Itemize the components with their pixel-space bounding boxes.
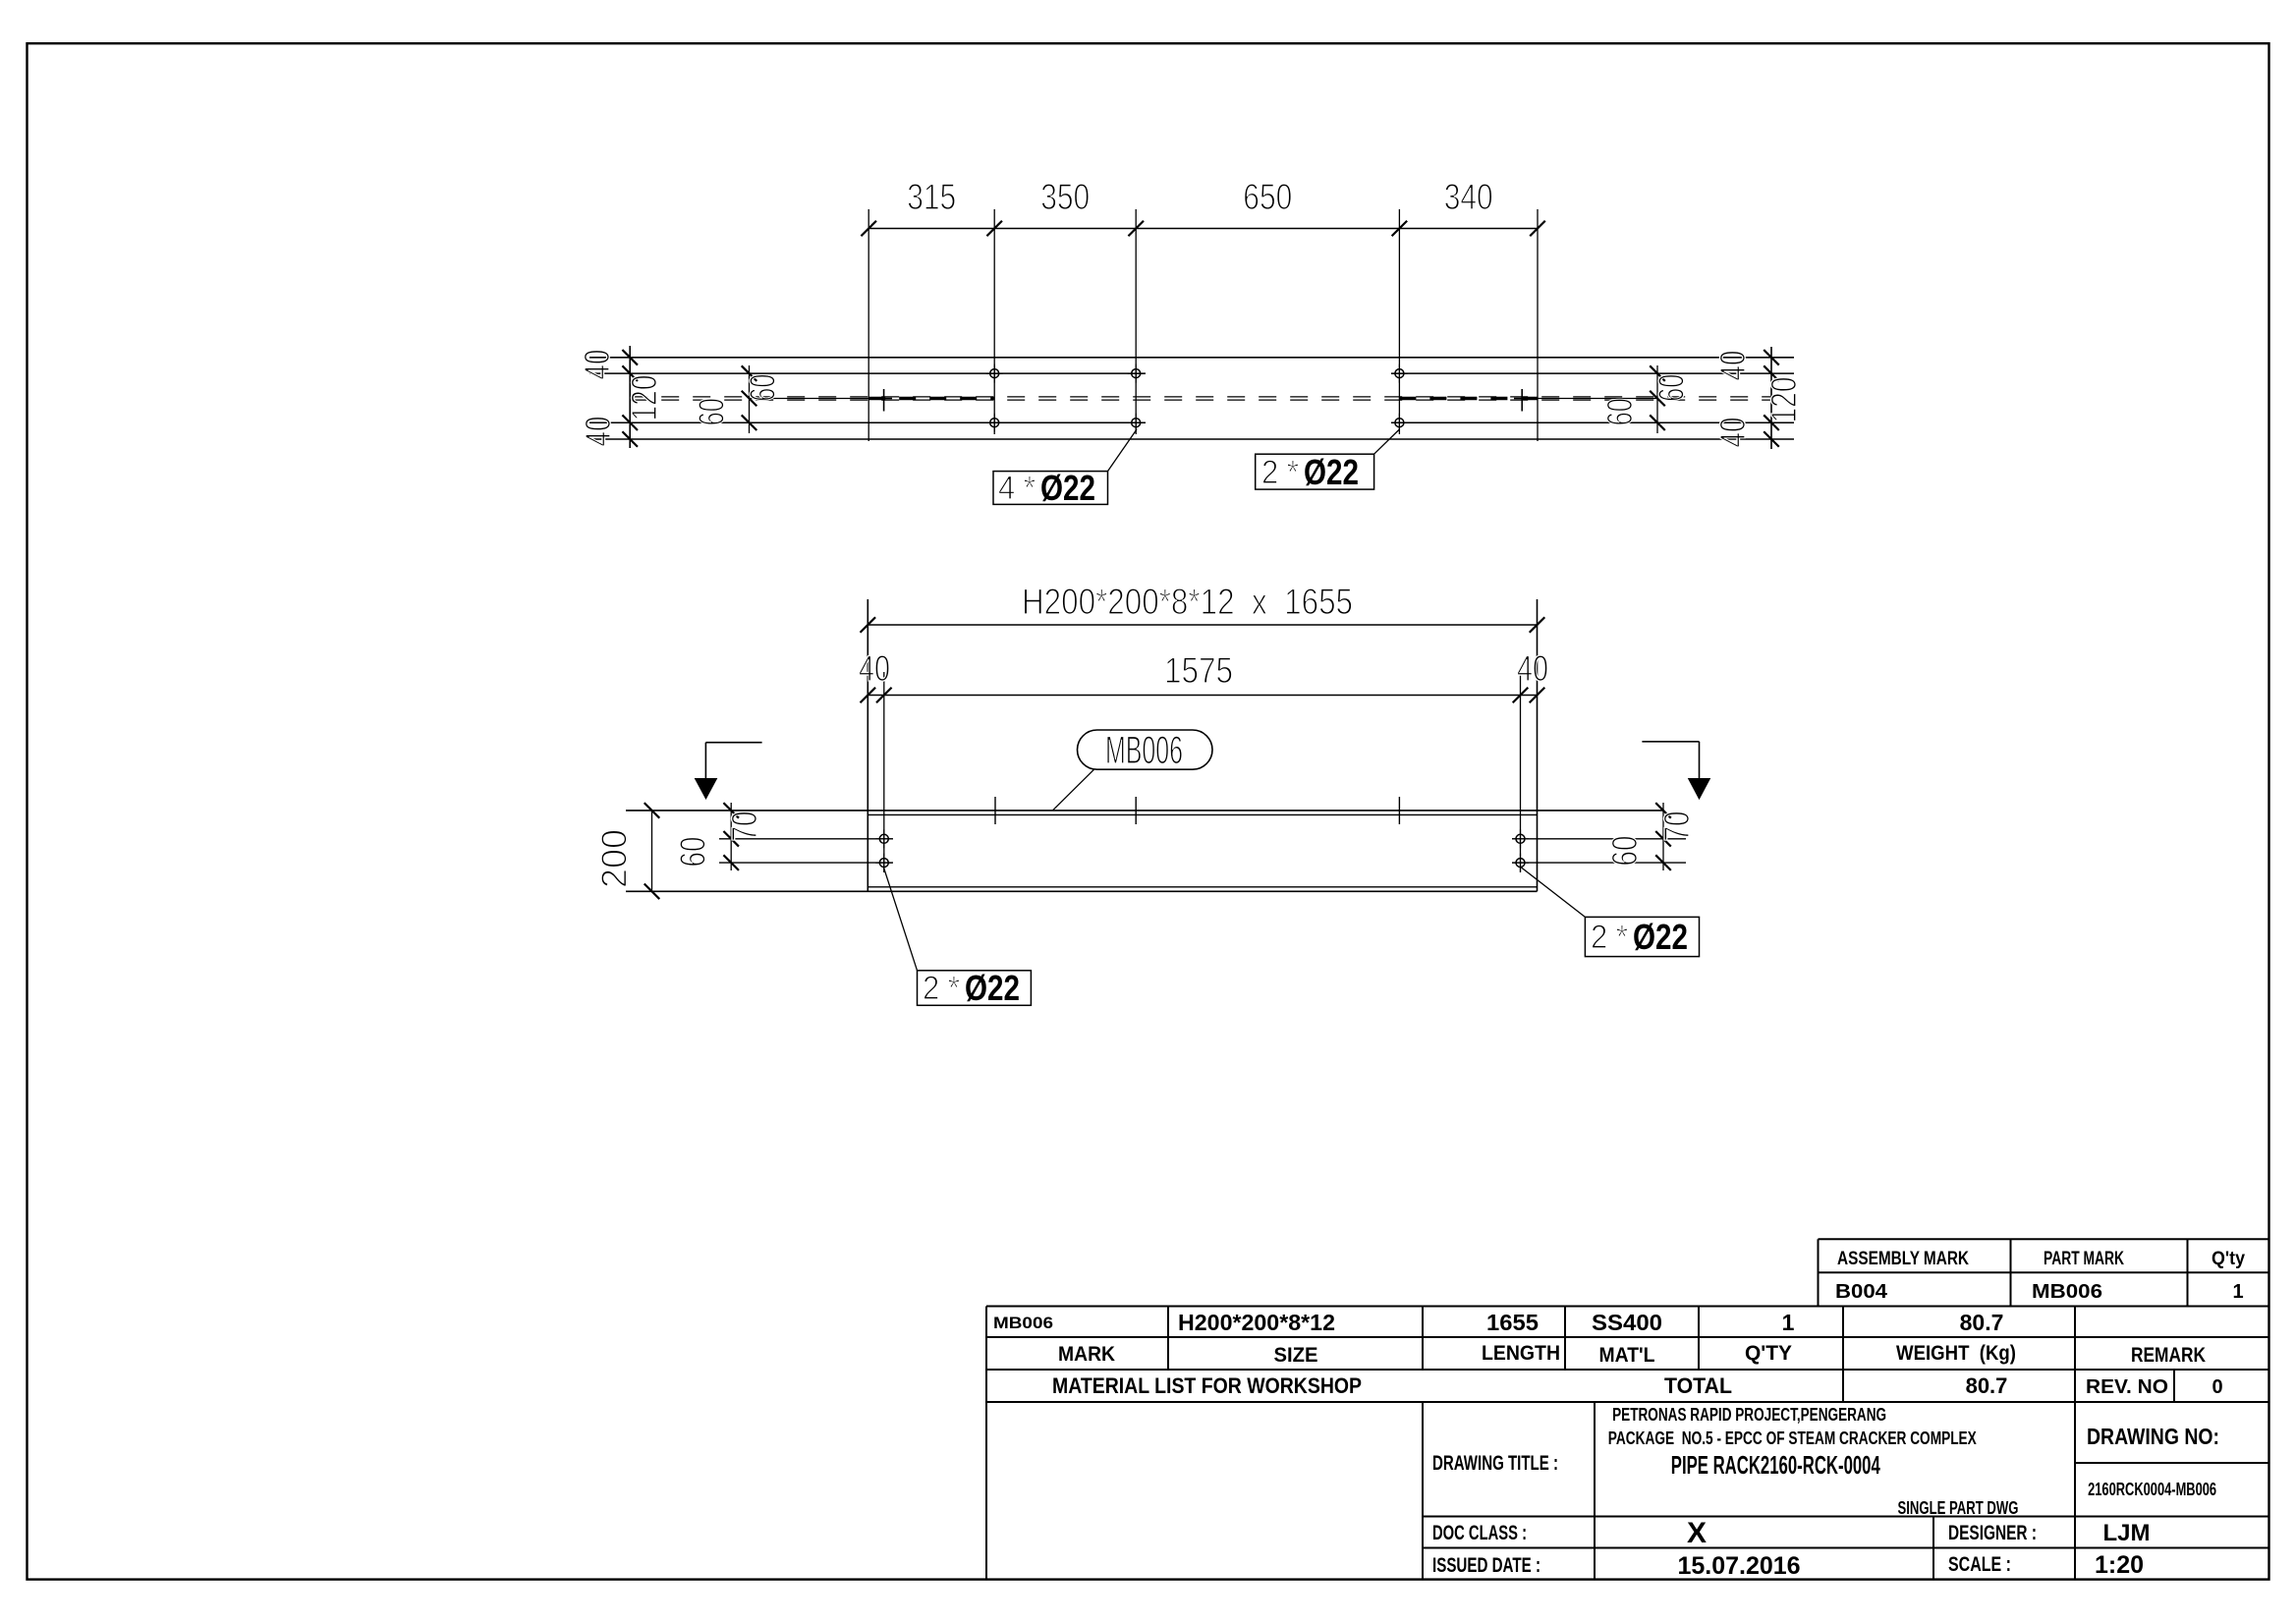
svg-text:650: 650 xyxy=(1243,177,1292,217)
svg-text:Ø22: Ø22 xyxy=(1633,917,1688,957)
svg-text:ISSUED DATE :: ISSUED DATE : xyxy=(1432,1554,1540,1577)
svg-text:LJM: LJM xyxy=(2103,1520,2151,1546)
svg-text:60: 60 xyxy=(691,398,731,425)
svg-text:PETRONAS RAPID PROJECT,PENGERA: PETRONAS RAPID PROJECT,PENGERANG xyxy=(1612,1405,1886,1425)
svg-text:MB006: MB006 xyxy=(2032,1281,2102,1303)
svg-text:MB006: MB006 xyxy=(1105,729,1183,772)
svg-text:120: 120 xyxy=(624,375,664,421)
svg-text:2 *: 2 * xyxy=(1591,919,1628,956)
svg-text:0: 0 xyxy=(2212,1376,2222,1398)
svg-text:350: 350 xyxy=(1040,177,1090,217)
svg-text:1655: 1655 xyxy=(1486,1310,1539,1335)
svg-text:SIZE: SIZE xyxy=(1274,1344,1318,1367)
svg-text:ASSEMBLY MARK: ASSEMBLY MARK xyxy=(1837,1249,1969,1269)
svg-text:15.07.2016: 15.07.2016 xyxy=(1677,1552,1800,1580)
svg-text:80.7: 80.7 xyxy=(1960,1310,2004,1335)
svg-text:60: 60 xyxy=(1599,398,1640,425)
svg-text:Q'TY: Q'TY xyxy=(1745,1342,1792,1365)
svg-text:60: 60 xyxy=(743,374,783,402)
svg-text:PART MARK: PART MARK xyxy=(2044,1249,2124,1269)
svg-text:1:20: 1:20 xyxy=(2095,1551,2144,1579)
svg-text:2 *: 2 * xyxy=(1261,454,1299,491)
svg-text:DESIGNER :: DESIGNER : xyxy=(1948,1522,2037,1544)
svg-text:340: 340 xyxy=(1444,177,1493,217)
svg-text:70: 70 xyxy=(1656,812,1697,842)
svg-text:70: 70 xyxy=(724,812,764,842)
svg-text:120: 120 xyxy=(1764,377,1804,423)
svg-text:1: 1 xyxy=(2232,1281,2243,1303)
svg-text:REMARK: REMARK xyxy=(2131,1344,2206,1367)
svg-text:MB006: MB006 xyxy=(993,1314,1053,1332)
svg-text:MAT'L: MAT'L xyxy=(1599,1344,1655,1367)
svg-text:Q'ty: Q'ty xyxy=(2212,1249,2245,1269)
svg-text:60: 60 xyxy=(673,837,713,868)
svg-text:B004: B004 xyxy=(1835,1281,1888,1303)
svg-text:SS400: SS400 xyxy=(1592,1310,1662,1335)
svg-text:40: 40 xyxy=(577,350,617,380)
svg-text:REV. NO: REV. NO xyxy=(2086,1376,2168,1398)
svg-text:SINGLE PART DWG: SINGLE PART DWG xyxy=(1898,1498,2019,1518)
svg-text:H200*200*8*12: H200*200*8*12 xyxy=(1178,1310,1335,1335)
svg-text:200: 200 xyxy=(594,829,635,888)
svg-text:40: 40 xyxy=(859,648,890,689)
svg-text:40: 40 xyxy=(1517,648,1548,689)
svg-text:315: 315 xyxy=(907,177,956,217)
svg-text:MATERIAL LIST FOR WORKSHOP: MATERIAL LIST FOR WORKSHOP xyxy=(1052,1373,1362,1398)
svg-text:LENGTH: LENGTH xyxy=(1482,1342,1560,1365)
svg-text:PIPE RACK2160-RCK-0004: PIPE RACK2160-RCK-0004 xyxy=(1671,1450,1880,1480)
svg-text:MARK: MARK xyxy=(1058,1343,1115,1366)
svg-text:80.7: 80.7 xyxy=(1966,1373,2008,1398)
svg-text:2160RCK0004-MB006: 2160RCK0004-MB006 xyxy=(2088,1480,2216,1499)
svg-text:1575: 1575 xyxy=(1164,650,1233,691)
svg-text:Ø22: Ø22 xyxy=(1304,452,1359,492)
svg-text:DRAWING TITLE :: DRAWING TITLE : xyxy=(1432,1452,1558,1475)
svg-text:60: 60 xyxy=(1604,836,1645,867)
svg-text:2 *: 2 * xyxy=(923,970,960,1007)
svg-text:DOC CLASS :: DOC CLASS : xyxy=(1432,1522,1527,1544)
svg-text:4 *: 4 * xyxy=(998,470,1036,507)
svg-text:1: 1 xyxy=(1782,1310,1795,1335)
svg-text:X: X xyxy=(1687,1517,1707,1549)
svg-text:DRAWING NO:: DRAWING NO: xyxy=(2087,1424,2219,1449)
svg-text:40: 40 xyxy=(1712,351,1753,381)
svg-text:40: 40 xyxy=(1712,418,1753,448)
svg-text:Ø22: Ø22 xyxy=(965,968,1020,1008)
svg-text:60: 60 xyxy=(1652,374,1692,402)
svg-text:H200*200*8*12 x 1655: H200*200*8*12 x 1655 xyxy=(1022,582,1353,622)
svg-text:PACKAGE NO.5 - EPCC OF STEAM: PACKAGE NO.5 - EPCC OF STEAM CRACKER COM… xyxy=(1608,1428,1977,1448)
svg-text:40: 40 xyxy=(578,417,618,447)
svg-text:SCALE :: SCALE : xyxy=(1948,1553,2011,1576)
svg-text:Ø22: Ø22 xyxy=(1040,468,1095,508)
svg-text:TOTAL: TOTAL xyxy=(1664,1373,1732,1398)
svg-text:WEIGHT (Kg): WEIGHT (Kg) xyxy=(1896,1342,2016,1365)
